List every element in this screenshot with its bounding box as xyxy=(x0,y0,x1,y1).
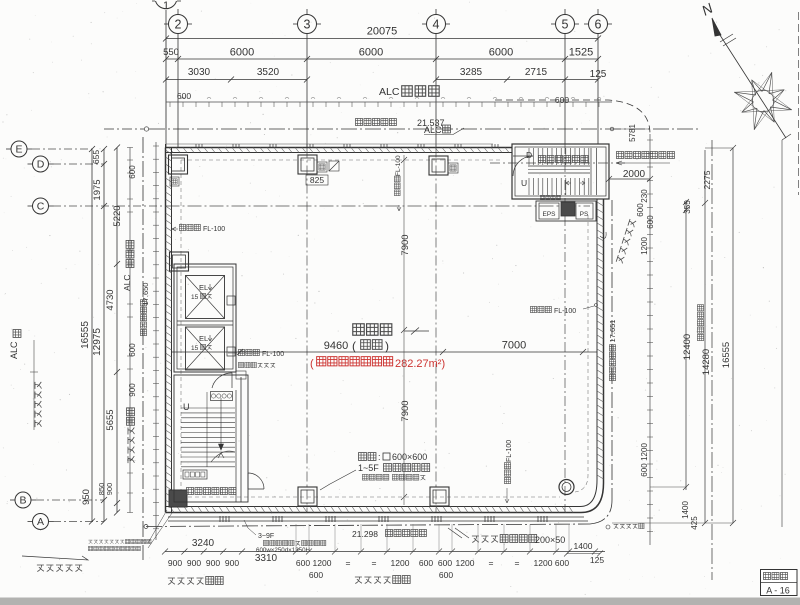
svg-text:282.27m²): 282.27m²) xyxy=(395,358,445,370)
svg-text:15: 15 xyxy=(191,345,199,352)
svg-text:900: 900 xyxy=(105,483,114,496)
svg-text:1975: 1975 xyxy=(92,179,103,200)
svg-text:3240: 3240 xyxy=(192,538,215,549)
svg-text:FL-100: FL-100 xyxy=(203,226,225,233)
svg-text:1525: 1525 xyxy=(569,47,593,59)
svg-text:FL-100: FL-100 xyxy=(554,308,576,315)
svg-text:550: 550 xyxy=(163,47,179,58)
svg-text:600: 600 xyxy=(128,165,137,179)
svg-text:900: 900 xyxy=(206,558,220,568)
svg-text:1200: 1200 xyxy=(391,558,410,568)
svg-text:230: 230 xyxy=(640,189,649,203)
svg-text:ALC: ALC xyxy=(9,341,19,359)
svg-text:ALC: ALC xyxy=(424,125,442,135)
svg-text:2: 2 xyxy=(175,18,182,32)
svg-text:6000: 6000 xyxy=(230,47,254,59)
svg-text:3: 3 xyxy=(304,18,311,32)
svg-text:1400: 1400 xyxy=(681,501,690,519)
svg-text:6: 6 xyxy=(595,18,602,32)
svg-text:6000: 6000 xyxy=(489,47,513,59)
svg-text:600: 600 xyxy=(177,91,191,101)
svg-text:17.650: 17.650 xyxy=(141,283,150,306)
svg-text:A - 16: A - 16 xyxy=(766,586,790,596)
svg-text:3030: 3030 xyxy=(188,67,211,78)
svg-text:9460: 9460 xyxy=(324,340,348,352)
svg-text:A: A xyxy=(37,516,44,528)
svg-text:2715: 2715 xyxy=(525,67,548,78)
svg-text:3310: 3310 xyxy=(255,553,278,564)
svg-text:20075: 20075 xyxy=(367,26,398,38)
svg-text:=: = xyxy=(346,558,351,568)
svg-text:600: 600 xyxy=(419,558,433,568)
svg-text:): ) xyxy=(385,339,389,353)
svg-text::: : xyxy=(378,452,381,462)
svg-text:U: U xyxy=(521,178,527,188)
svg-text:7000: 7000 xyxy=(502,340,526,352)
svg-text:16555: 16555 xyxy=(721,342,732,368)
svg-text:5: 5 xyxy=(562,18,569,32)
svg-text:FL-100: FL-100 xyxy=(506,440,513,462)
svg-text:600: 600 xyxy=(128,343,137,357)
svg-text:(: ( xyxy=(352,339,356,353)
svg-text:1200: 1200 xyxy=(534,558,553,568)
svg-text:655: 655 xyxy=(91,150,101,164)
svg-text:4730: 4730 xyxy=(105,289,116,310)
svg-text:=: = xyxy=(489,558,494,568)
svg-text:125: 125 xyxy=(590,555,604,565)
svg-text:900: 900 xyxy=(128,383,137,397)
svg-text:2000: 2000 xyxy=(623,169,646,180)
svg-text:C: C xyxy=(37,201,45,213)
svg-text:3520: 3520 xyxy=(257,67,280,78)
svg-text:ALC: ALC xyxy=(122,274,132,291)
svg-text:15: 15 xyxy=(191,294,199,301)
svg-text:600: 600 xyxy=(555,558,569,568)
svg-text:3285: 3285 xyxy=(460,67,483,78)
svg-text:1200: 1200 xyxy=(640,443,649,461)
svg-text:600: 600 xyxy=(555,95,569,105)
svg-text:7900: 7900 xyxy=(400,400,411,421)
svg-text:17.651: 17.651 xyxy=(608,320,617,343)
svg-text:600: 600 xyxy=(309,570,323,580)
svg-text:825: 825 xyxy=(310,175,324,185)
svg-text:=: = xyxy=(372,558,377,568)
svg-text:21.298: 21.298 xyxy=(352,529,378,539)
svg-text:B: B xyxy=(19,495,26,507)
svg-text:FL-100: FL-100 xyxy=(395,155,402,176)
svg-text:355: 355 xyxy=(683,200,692,214)
svg-text:3~9F: 3~9F xyxy=(258,533,274,540)
svg-text:7900: 7900 xyxy=(400,234,411,255)
svg-text:EL: EL xyxy=(199,283,208,292)
svg-text:600: 600 xyxy=(636,203,645,217)
svg-text:EPS: EPS xyxy=(542,211,556,218)
svg-text:900: 900 xyxy=(187,558,201,568)
svg-text:600: 600 xyxy=(646,215,655,229)
svg-text:ALC: ALC xyxy=(379,86,400,98)
svg-text:600: 600 xyxy=(439,570,453,580)
svg-text:16555: 16555 xyxy=(80,321,91,349)
svg-text:200×50: 200×50 xyxy=(535,535,565,545)
svg-text:1200: 1200 xyxy=(456,558,475,568)
svg-text:12975: 12975 xyxy=(92,328,103,356)
svg-text:900: 900 xyxy=(225,558,239,568)
svg-text:1200: 1200 xyxy=(313,558,332,568)
svg-text:EL: EL xyxy=(199,334,208,343)
svg-text:1400: 1400 xyxy=(574,541,593,551)
svg-text:U: U xyxy=(183,402,190,412)
svg-text:125: 125 xyxy=(590,69,607,80)
svg-text:950: 950 xyxy=(81,489,92,505)
svg-text:600: 600 xyxy=(640,463,649,477)
svg-text:900: 900 xyxy=(168,558,182,568)
svg-text:14280: 14280 xyxy=(701,349,712,375)
svg-text:5220: 5220 xyxy=(112,205,123,226)
svg-text:5655: 5655 xyxy=(105,409,116,430)
svg-text:D: D xyxy=(37,159,45,171)
svg-text:600×600: 600×600 xyxy=(392,452,427,462)
svg-text:600: 600 xyxy=(296,558,310,568)
svg-text:N: N xyxy=(699,0,716,19)
svg-text:4: 4 xyxy=(433,18,440,32)
svg-text:5781: 5781 xyxy=(628,124,637,142)
svg-text:1~5F: 1~5F xyxy=(358,463,379,473)
svg-text:12400: 12400 xyxy=(682,334,693,360)
svg-text:6000: 6000 xyxy=(359,47,383,59)
svg-text:D: D xyxy=(526,150,532,160)
svg-text:1200: 1200 xyxy=(640,237,649,255)
svg-text:600: 600 xyxy=(438,558,452,568)
svg-text:PS: PS xyxy=(580,211,589,218)
svg-text:(: ( xyxy=(310,358,314,370)
svg-text:2275: 2275 xyxy=(702,170,712,189)
svg-text:E: E xyxy=(15,144,22,156)
svg-text:=: = xyxy=(515,558,520,568)
